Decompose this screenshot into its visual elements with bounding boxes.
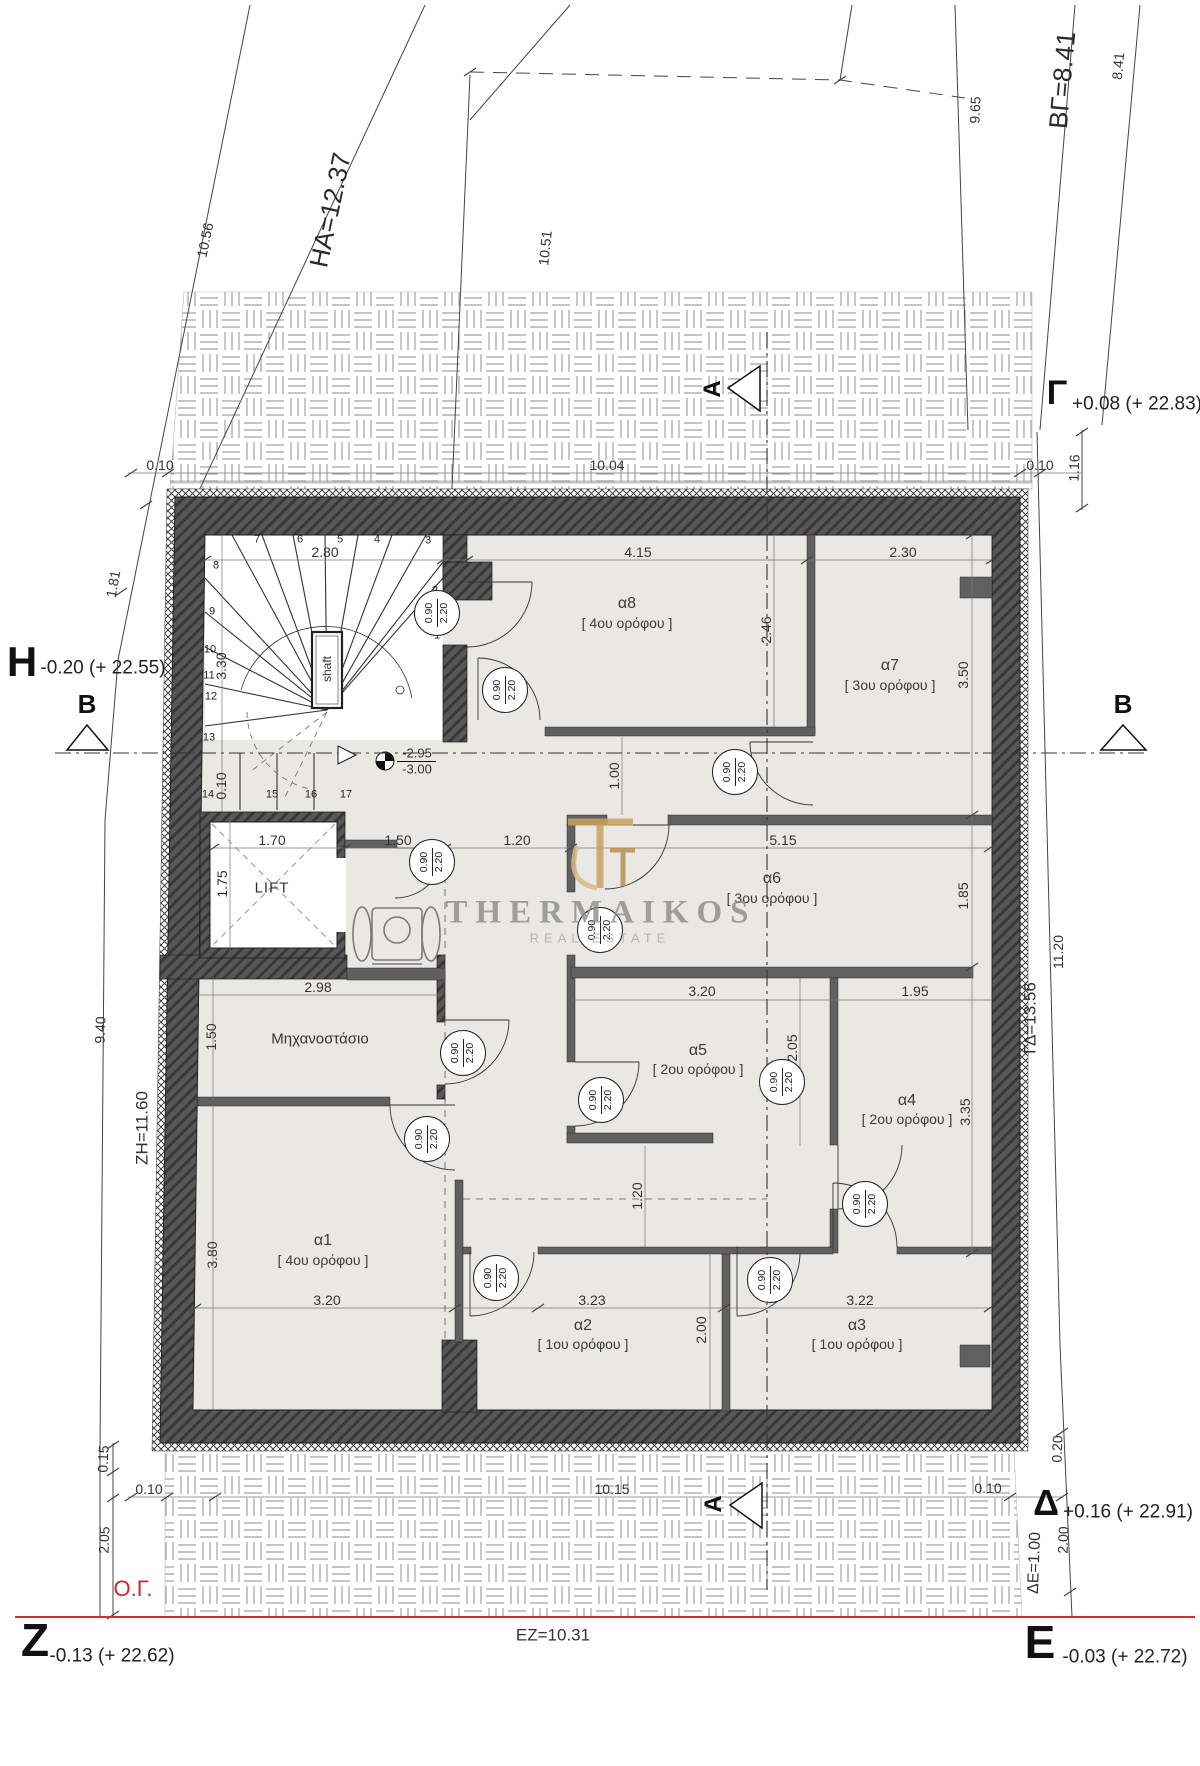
room-a6: α6 bbox=[763, 871, 781, 887]
mech-dim-w: 2.98 bbox=[304, 980, 331, 994]
room-a7-floor: [ 3ου ορόφου ] bbox=[845, 678, 936, 692]
corner-zeta-level: -0.13 (+ 22.62) bbox=[49, 1647, 174, 1666]
stair-num: 5 bbox=[337, 535, 343, 546]
dim-a8-cl: 2.46 bbox=[759, 616, 773, 643]
door-size-label: 0.902.20 bbox=[759, 1059, 805, 1105]
stair-num: 8 bbox=[213, 561, 219, 572]
room-a5-floor: [ 2ου ορόφου ] bbox=[653, 1062, 744, 1076]
corner-epsilon: Ε bbox=[1025, 1619, 1056, 1665]
dim-a6-w: 5.15 bbox=[769, 833, 796, 847]
corner-gamma-level: +0.08 (+ 22.83) bbox=[1072, 395, 1200, 414]
dim-205: 2.05 bbox=[97, 1526, 112, 1554]
corridor-dim-120: 1.20 bbox=[630, 1182, 644, 1209]
corner-gamma: Γ bbox=[1047, 376, 1067, 410]
lift-dim-h: 1.75 bbox=[215, 870, 229, 897]
level-upper: -2.95 bbox=[402, 747, 432, 760]
dim-gd: ΓΔ=13.56 bbox=[1022, 982, 1039, 1054]
dim-010-bl: 0.10 bbox=[135, 1482, 162, 1496]
dim-a1-w: 3.20 bbox=[313, 1293, 340, 1307]
dim-ez: ΕΖ=10.31 bbox=[516, 1627, 590, 1644]
boundary-dim: 9.65 bbox=[968, 96, 983, 124]
corner-zeta: Ζ bbox=[21, 1617, 49, 1663]
dim-a6-h: 1.85 bbox=[956, 882, 970, 909]
dim-a8-w: 4.15 bbox=[624, 545, 651, 559]
corner-delta-level: +0.16 (+ 22.91) bbox=[1063, 1503, 1193, 1522]
section-b-right: B bbox=[1114, 691, 1133, 717]
dim-a4-h: 3.35 bbox=[958, 1098, 972, 1125]
stair-num: 14 bbox=[202, 790, 214, 801]
level-lower: -3.00 bbox=[402, 763, 432, 776]
door-size-label: 0.902.20 bbox=[842, 1181, 888, 1227]
dim-010-br: 0.10 bbox=[974, 1481, 1001, 1495]
stair-num: 11 bbox=[203, 671, 214, 682]
door-size-label: 0.902.20 bbox=[578, 1077, 624, 1123]
room-a2: α2 bbox=[574, 1318, 592, 1334]
stair-num: 7 bbox=[254, 535, 260, 546]
dim-a3-w: 3.22 bbox=[846, 1293, 873, 1307]
corner-epsilon-level: -0.03 (+ 22.72) bbox=[1062, 1648, 1187, 1667]
room-a3: α3 bbox=[848, 1318, 866, 1334]
stair-num: 16 bbox=[305, 790, 317, 801]
dim-a2-w: 3.23 bbox=[578, 1293, 605, 1307]
door-size-label: 0.902.20 bbox=[414, 590, 460, 636]
dim-a5-h: 2.05 bbox=[785, 1034, 799, 1061]
room-a7: α7 bbox=[881, 658, 899, 674]
stair-num: 10 bbox=[204, 645, 216, 656]
plan-geometry bbox=[0, 0, 1200, 1766]
dim-020: 0.20 bbox=[1050, 1435, 1065, 1463]
floor-plan-drawing: 10.56 HA=12.37 10.51 9.65 ΒΓ=8.41 8.41 0… bbox=[0, 0, 1200, 1766]
door-size-label: 0.902.20 bbox=[482, 667, 528, 713]
boundary-dim: 10.51 bbox=[536, 230, 554, 266]
section-a-bottom: A bbox=[702, 1495, 726, 1512]
dim-015: 0.15 bbox=[96, 1445, 111, 1473]
stair-num: 9 bbox=[209, 607, 215, 618]
dim-zh: ΖΗ=11.60 bbox=[134, 1091, 151, 1165]
dim-a2-h: 2.00 bbox=[694, 1316, 708, 1343]
mech-dim-h: 1.50 bbox=[204, 1023, 218, 1050]
room-a1: α1 bbox=[314, 1233, 332, 1249]
lift-label: LIFT bbox=[255, 881, 290, 896]
landing-dim-120: 1.20 bbox=[503, 833, 530, 847]
landing-dim-150: 1.50 bbox=[384, 833, 411, 847]
dim-a5-w: 3.20 bbox=[688, 984, 715, 998]
room-a4: α4 bbox=[898, 1093, 916, 1109]
dim-010-topright: 0.10 bbox=[1026, 458, 1053, 472]
stair-num: 17 bbox=[340, 790, 352, 801]
stair-dim-330: 3.30 bbox=[214, 652, 228, 679]
stair-num: 6 bbox=[297, 535, 303, 546]
door-size-label: 0.902.20 bbox=[404, 1116, 450, 1162]
door-size-label: 0.902.20 bbox=[409, 839, 455, 885]
corridor-dim-100: 1.00 bbox=[607, 762, 621, 789]
machine-room-label: Μηχανοστάσιο bbox=[271, 1032, 368, 1047]
dim-116: 1.16 bbox=[1067, 454, 1082, 482]
door-size-label: 0.902.20 bbox=[440, 1030, 486, 1076]
dim-a1-h: 3.80 bbox=[205, 1241, 219, 1268]
room-a8: α8 bbox=[618, 596, 636, 612]
door-size-label: 0.902.20 bbox=[473, 1255, 519, 1301]
og-label: Ο.Γ. bbox=[113, 1578, 152, 1600]
section-a-top: A bbox=[701, 380, 725, 397]
stair-num: 13 bbox=[203, 733, 215, 744]
watermark-name: THERMAIKOS bbox=[445, 897, 756, 930]
corner-eta-level: -0.20 (+ 22.55) bbox=[40, 659, 165, 678]
dim-940: 9.40 bbox=[93, 1016, 108, 1044]
dim-a7-w: 2.30 bbox=[889, 545, 916, 559]
dim-a7-h: 3.50 bbox=[956, 661, 970, 688]
stair-dim-280: 2.80 bbox=[311, 545, 338, 559]
room-a4-floor: [ 2ου ορόφου ] bbox=[862, 1112, 953, 1126]
stair-num: 12 bbox=[205, 692, 217, 703]
room-a1-floor: [ 4ου ορόφου ] bbox=[278, 1253, 369, 1267]
room-a5: α5 bbox=[689, 1043, 707, 1059]
dim-200: 2.00 bbox=[1056, 1526, 1071, 1554]
stair-num: 4 bbox=[374, 535, 380, 546]
dim-1015: 10.15 bbox=[594, 1482, 629, 1496]
room-a2-floor: [ 1ου ορόφου ] bbox=[538, 1337, 629, 1351]
dim-010-topleft: 0.10 bbox=[146, 458, 173, 472]
shaft-label: shaft bbox=[321, 656, 333, 682]
dim-de: ΔΕ=1.00 bbox=[1026, 1532, 1044, 1594]
door-size-label: 0.902.20 bbox=[712, 749, 758, 795]
dim-1120: 11.20 bbox=[1051, 935, 1065, 969]
stair-num: 15 bbox=[266, 790, 278, 801]
room-a8-floor: [ 4ου ορόφου ] bbox=[582, 616, 673, 630]
door-size-label: 0.902.20 bbox=[747, 1257, 793, 1303]
stair-dim-010: 0.10 bbox=[214, 772, 228, 799]
room-a3-floor: [ 1ου ορόφου ] bbox=[812, 1337, 903, 1351]
stair-num: 3 bbox=[425, 536, 431, 547]
dim-1004: 10.04 bbox=[589, 458, 624, 472]
corner-eta: Η bbox=[7, 641, 37, 683]
corner-delta: Δ bbox=[1033, 1485, 1059, 1521]
section-b-left: B bbox=[78, 691, 97, 717]
watermark-subtitle: REAL ESTATE bbox=[530, 932, 671, 945]
boundary-dim: 8.41 bbox=[1110, 52, 1126, 80]
lift-dim-w: 1.70 bbox=[258, 833, 285, 847]
dim-a4-w: 1.95 bbox=[901, 984, 928, 998]
